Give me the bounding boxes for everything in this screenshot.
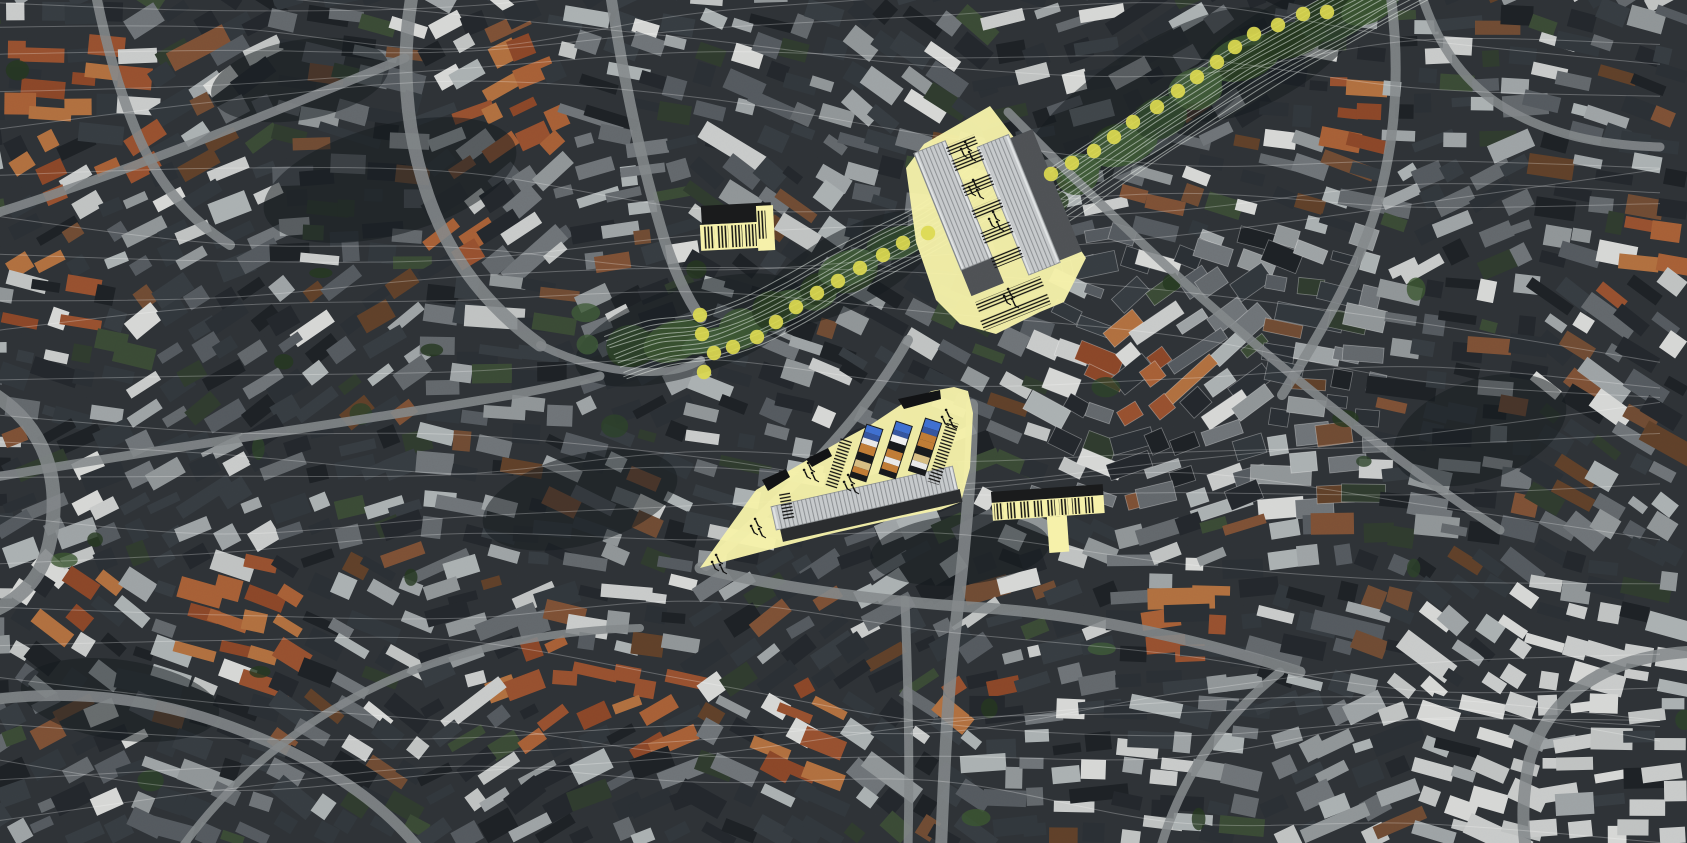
photo-grain-layer <box>0 0 1687 843</box>
aerial-masterplan-image <box>0 0 1687 843</box>
photo-grain <box>0 0 1687 843</box>
map-canvas <box>0 0 1687 843</box>
